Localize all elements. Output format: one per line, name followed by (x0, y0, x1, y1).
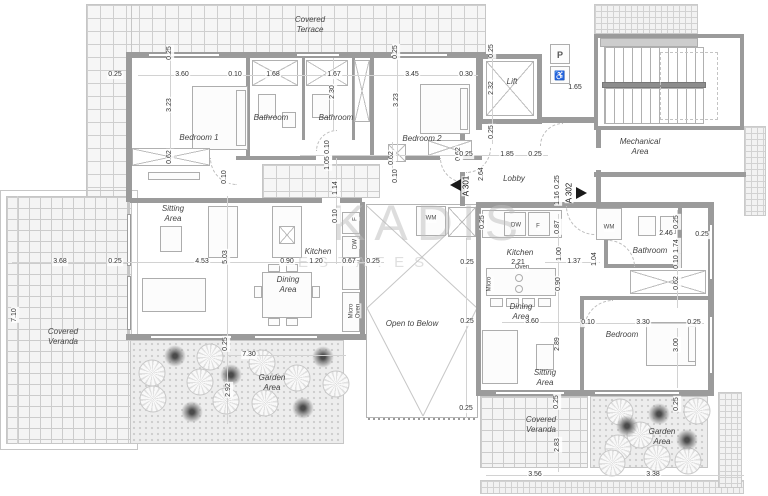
door-swing (566, 206, 595, 235)
dimension-line (333, 58, 334, 130)
dimension-line (170, 45, 171, 161)
lift-car (486, 61, 534, 116)
washing-machine-closet (596, 208, 622, 240)
wall (580, 296, 584, 394)
armchair (160, 226, 182, 252)
wall (580, 296, 712, 300)
lift-wall (537, 54, 542, 124)
lift-wall (478, 54, 542, 59)
garden-area-right (590, 396, 708, 468)
window (254, 335, 318, 339)
wardrobe (132, 148, 210, 166)
door-swing (210, 158, 237, 185)
door-swing (316, 130, 337, 151)
wall (542, 117, 598, 123)
bed-pillows (236, 90, 246, 146)
dimension-line (300, 155, 548, 156)
dimension-label: 1.65 (567, 84, 583, 92)
cooktop (279, 226, 295, 244)
dimension-line (466, 238, 467, 418)
door-opening (316, 156, 332, 160)
wall (596, 128, 601, 148)
chair (506, 298, 519, 307)
window (148, 53, 220, 57)
window (390, 53, 448, 57)
shelf-unit (208, 206, 238, 258)
chair (286, 318, 298, 326)
chair (268, 264, 280, 272)
covered-veranda-left-area (6, 196, 132, 444)
fridge (528, 212, 550, 236)
closet (354, 60, 370, 122)
floor-plan-canvas: KADIS ESTATES A 301 A 302 Covered Terrac… (0, 0, 768, 496)
room-label: Sitting Area (534, 368, 556, 388)
wall (302, 56, 305, 140)
wall (594, 172, 746, 177)
room-label: Mechanical Area (620, 137, 660, 157)
room-label: Sitting Area (162, 204, 184, 224)
toilet (282, 112, 296, 128)
dimension-line (558, 214, 559, 350)
dining-table (262, 272, 312, 318)
door-swing (540, 123, 563, 146)
bathroom-sink (638, 216, 656, 236)
room-label: Bathroom (633, 246, 668, 256)
tv-console (148, 172, 200, 180)
dimension-line (502, 322, 588, 323)
chair (522, 298, 535, 307)
window (296, 53, 340, 57)
armchair (536, 344, 554, 370)
wardrobe (630, 270, 706, 294)
door-swing (466, 148, 491, 173)
lift-wall (478, 119, 542, 124)
dimension-line (138, 75, 478, 76)
stair-wall (594, 126, 744, 130)
cooktop-burner (515, 274, 523, 282)
section-arrow-icon (576, 187, 587, 199)
stair-landing (600, 38, 698, 47)
dimension-label: 1.04 (591, 251, 599, 267)
cooktop-burner (515, 285, 523, 293)
window (594, 391, 680, 395)
dimension-label: 0.25 (554, 174, 562, 190)
mechanical-side-hatch-area (744, 126, 766, 216)
stair-wall (594, 34, 598, 130)
sofa (482, 330, 518, 384)
window (127, 214, 131, 266)
dimension-line (227, 196, 228, 424)
dimension-label: 0.10 (392, 168, 400, 184)
dimension-line (228, 355, 346, 356)
walkway-strip-area (480, 480, 744, 494)
wall (126, 52, 132, 202)
chair (268, 318, 280, 326)
chair (490, 298, 503, 307)
section-arrow-icon (450, 179, 461, 191)
roof-hatch-top-right-area (594, 4, 698, 34)
dimension-line (677, 396, 678, 414)
chair (254, 286, 262, 298)
window (150, 335, 232, 339)
micro-oven-unit (342, 292, 360, 332)
section-marker-label: A 302 (565, 183, 574, 203)
dimension-line (392, 142, 393, 174)
shower (306, 60, 348, 86)
wall (370, 56, 374, 160)
dimension-line (677, 328, 678, 388)
lift-wall (478, 54, 483, 124)
dimension-line (486, 475, 744, 476)
dimension-line (397, 45, 398, 161)
toilet (660, 216, 676, 234)
room-label: Lobby (503, 174, 525, 184)
stair-walk-line (660, 52, 718, 120)
parking-sign-box (550, 44, 570, 64)
door-swing (608, 240, 635, 267)
stair-wall (740, 34, 744, 130)
dimension-line (492, 48, 493, 144)
dimension-line (582, 323, 704, 324)
window (709, 316, 713, 374)
dimension-label: 0.90 (555, 276, 563, 292)
watermark-brand: KADIS (332, 194, 527, 252)
watermark-subtitle: ESTATES (298, 254, 434, 271)
shower (252, 60, 298, 86)
dimension-line (677, 210, 678, 308)
dimension-line (558, 396, 559, 472)
bed-pillows (688, 326, 696, 362)
window (495, 391, 565, 395)
dimension-line (17, 196, 18, 444)
door-swing (584, 300, 613, 329)
window (709, 224, 713, 280)
bed-pillows (460, 88, 468, 130)
accessible-sign-box (550, 66, 570, 84)
room-label: Bedroom (606, 330, 638, 340)
chair (286, 264, 298, 272)
sofa (142, 278, 206, 312)
covered-veranda-right-area (480, 396, 588, 468)
chair (312, 286, 320, 298)
section-marker-label: A 301 (462, 176, 471, 196)
side-hatch-right-area (718, 392, 742, 488)
covered-terrace-inset-area (262, 164, 380, 198)
dimension-label: 2.21 (510, 259, 526, 267)
dimension-line (545, 262, 600, 263)
bathroom-sink (258, 94, 276, 118)
wall (678, 208, 682, 268)
bathroom-sink (312, 94, 330, 118)
covered-terrace-area (86, 4, 486, 58)
chair (538, 298, 551, 307)
window (127, 276, 131, 330)
